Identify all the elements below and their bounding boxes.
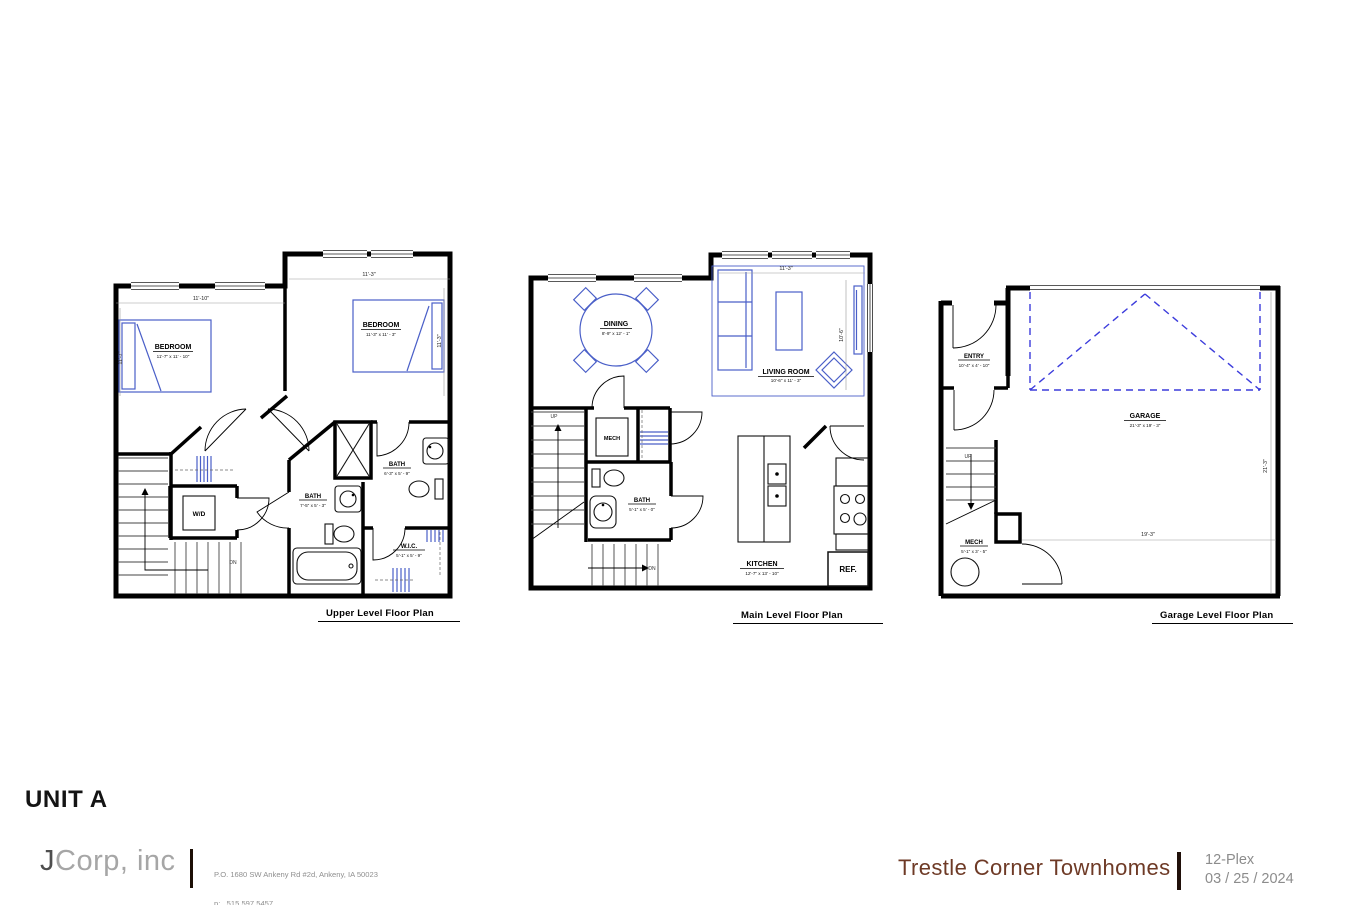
bedroom1-label: BEDROOM [155,344,192,351]
company-logo-rest: Corp, inc [55,845,176,877]
sheet-meta: 12-Plex 03 / 25 / 2024 [1205,851,1294,889]
laundry-closet [175,456,269,530]
kitchen-counter-range [830,426,868,550]
bath2-dims: 6'-3" x 5' - 9" [384,471,410,476]
upper-level-plan: 11'-10" 11'-3" 11'-7" 11'-3" BEDROOM 11'… [113,246,455,605]
water-heater [951,558,979,586]
garage-room-labels: ENTRY 10'-4" x 4' - 10" GARAGE 21'-3" x … [958,354,1166,554]
bath1-dims: 7'-5" x 5' - 3" [300,503,326,508]
main-dn-label: DN [648,566,656,572]
kitchen-label: KITCHEN [746,561,777,568]
bedroom2-dims: 11'-3" x 11' - 3" [366,332,396,337]
living-room-dims: 10'-6" x 11' - 3" [771,378,802,383]
dim-11-7-left: 11'-7" [118,351,124,364]
shower-stall [335,422,371,478]
company-address: P.O. 1680 SW Ankeny Rd #2d, Ankeny, IA 5… [214,870,378,880]
logo-divider-bar [190,849,193,888]
entry-label: ENTRY [964,354,984,360]
dining-label: DINING [604,321,629,328]
dim-21-3: 21'-3" [1263,459,1269,473]
garage-door-opening [1030,286,1260,290]
bath1-label: BATH [305,494,321,500]
upper-plan-title: Upper Level Floor Plan [318,608,460,622]
wic-dims: 5'-1" x 5' - 9" [396,553,422,558]
dim-11-3-right: 11'-3" [437,334,443,347]
main-bath-dims: 5'-1" x 5' - 0" [629,507,655,512]
garage-up-label: UP [965,454,973,460]
entry-inner-door [954,390,994,430]
garage-outer-walls [941,286,1280,596]
kitchen-dims: 12'-7" x 13' - 10" [745,571,779,576]
garage-mech-dims: 5'-1" x 3' - 5" [961,549,987,554]
upper-level-drawing: 11'-10" 11'-3" 11'-7" 11'-3" BEDROOM 11'… [113,246,455,600]
garage-interior-walls [941,370,1020,542]
garage-label: GARAGE [1130,413,1161,420]
dim-19-3: 19'-3" [1141,532,1155,538]
main-bath-label: BATH [634,498,650,504]
living-room-label: LIVING ROOM [762,369,809,376]
project-divider-bar [1177,852,1181,890]
garage-mech-label: MECH [965,540,983,546]
bedroom2-label: BEDROOM [363,322,400,329]
garage-entry-door-arc [1022,544,1062,584]
plex-label: 12-Plex [1205,851,1294,870]
wic-label: W.I.C. [401,544,418,550]
unit-title: UNIT A [25,786,108,814]
bath1-fixtures [257,486,361,584]
project-title: Trestle Corner Townhomes [898,855,1170,881]
dining-dims: 8'-9" x 12' - 1" [602,331,631,336]
company-logo: JCorp, inc [40,845,176,878]
kitchen-island [738,436,790,542]
garage-dimensions: 19'-3" 21'-3" [1022,292,1276,594]
bath2-label: BATH [389,462,405,468]
dim-11-3-top: 11'-3" [362,272,375,278]
dim-10-6-main: 10'-6" [839,328,845,342]
main-level-drawing: REF. 11'-3" 10'-6" DINING 8'-9" x 12' - … [528,250,874,592]
main-plan-title: Main Level Floor Plan [733,610,883,624]
garage-level-plan: 19'-3" 21'-3" ENTRY 10'-4" x 4' - 10" GA… [938,278,1284,607]
wic-fixtures [373,528,443,592]
mech-closet [592,376,702,460]
washer-dryer-label: W/D [193,511,206,518]
floorplan-sheet: 11'-10" 11'-3" 11'-7" 11'-3" BEDROOM 11'… [0,0,1362,905]
refrigerator: REF. [828,552,868,586]
entry-dims: 10'-4" x 4' - 10" [959,363,990,368]
dim-11-3-main: 11'-3" [779,266,792,272]
main-room-labels: DINING 8'-9" x 12' - 1" LIVING ROOM 10'-… [551,321,814,576]
garage-dims: 21'-3" x 19' - 3" [1130,423,1161,428]
main-mech-label: MECH [604,436,620,442]
bedroom1-dims: 11'-7" x 11' - 10" [157,354,190,359]
upper-stairs [118,458,241,594]
company-logo-initial: J [40,845,55,877]
hall-door-arcs [205,409,309,451]
garage-plan-title: Garage Level Floor Plan [1152,610,1293,624]
dim-11-10: 11'-10" [193,296,209,302]
company-address-block: P.O. 1680 SW Ankeny Rd #2d, Ankeny, IA 5… [214,851,378,905]
bath2-fixtures [377,422,449,499]
upper-dn-label: DN [229,560,237,566]
sheet-date: 03 / 25 / 2024 [1205,870,1294,889]
main-up-label: UP [551,414,559,420]
garage-level-drawing: 19'-3" 21'-3" ENTRY 10'-4" x 4' - 10" GA… [938,278,1284,602]
ref-label: REF. [839,565,856,574]
dining-table [574,288,659,373]
garage-door-swing-dashed [1030,292,1260,390]
entry-door [953,305,996,348]
main-level-plan: REF. 11'-3" 10'-6" DINING 8'-9" x 12' - … [528,250,874,597]
main-interior-walls [531,408,826,542]
company-phone: p: 515.597.5457 [214,899,378,905]
